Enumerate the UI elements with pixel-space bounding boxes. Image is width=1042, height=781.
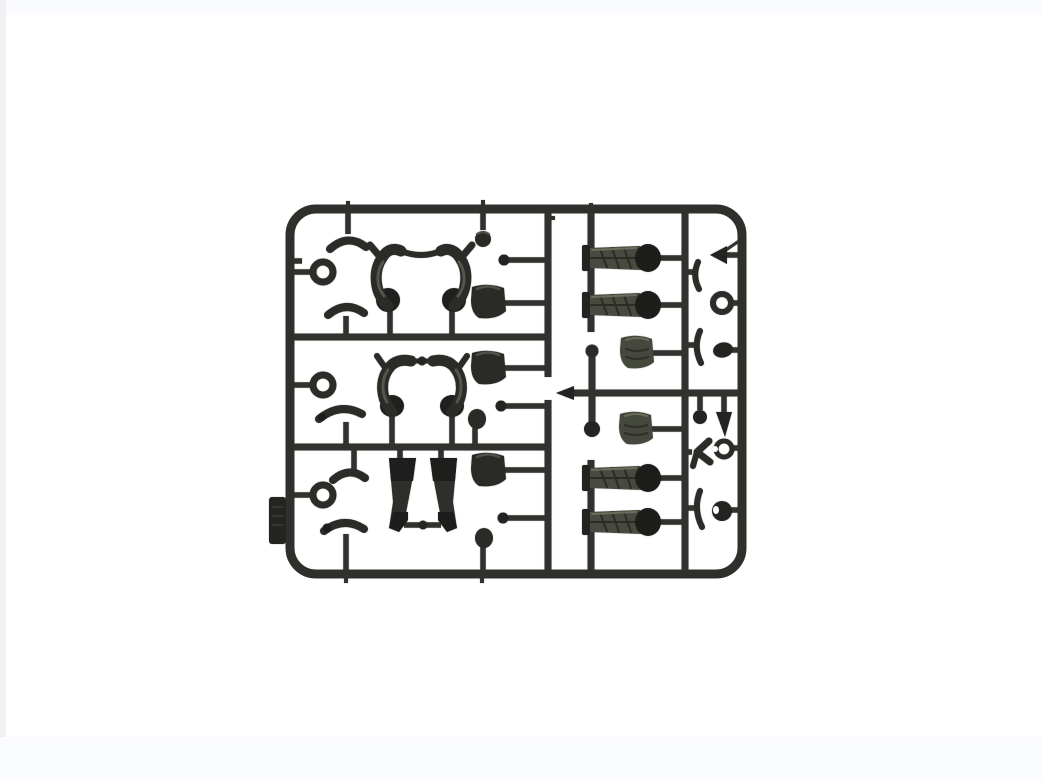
cap-part-1 [330, 240, 366, 249]
torso-5 [619, 412, 653, 445]
boot-pair [389, 458, 457, 532]
y-part [693, 441, 710, 466]
helmet-ball-hanging [693, 410, 707, 424]
knob-2 [496, 401, 507, 412]
helmet-ball-mid [584, 421, 600, 437]
arrow-part [710, 246, 727, 264]
knob-3 [498, 513, 509, 524]
torso-1 [471, 285, 506, 319]
cap-part-2 [328, 307, 364, 315]
knob-1 [499, 255, 510, 266]
helmet-ring-2 [313, 375, 333, 395]
cap-part-3 [318, 409, 362, 421]
arm-pair-upper [370, 245, 472, 312]
leg-pair-3 [582, 464, 661, 492]
strap-3 [697, 491, 702, 527]
arm-pair-middle [377, 356, 467, 417]
leg-pair-4 [582, 508, 661, 536]
helmet-ball-right [712, 501, 732, 521]
helmet-ring-right [713, 294, 731, 312]
helmet-ring-3 [313, 485, 333, 505]
torso-2 [471, 351, 506, 385]
head-small [586, 345, 599, 358]
head-ball [475, 231, 491, 247]
leg-pair-2 [582, 291, 661, 319]
strap-2 [697, 331, 701, 363]
spike-part [716, 412, 732, 437]
molding-tag [269, 497, 286, 544]
cone-part [556, 386, 574, 400]
oval-part [712, 341, 735, 360]
head-spoon-2 [475, 528, 493, 548]
head-spoon-1 [468, 409, 486, 429]
open-ring [712, 441, 732, 457]
torso-3 [471, 453, 506, 487]
product-photo [0, 0, 1042, 781]
leg-pair-1 [582, 244, 661, 272]
cap-part-4 [333, 472, 365, 480]
helmet-ring-1 [313, 262, 333, 282]
model-kit-sprue [0, 0, 1042, 781]
cap-part-5 [323, 523, 365, 533]
strap-1 [695, 262, 699, 289]
torso-4 [620, 336, 654, 369]
